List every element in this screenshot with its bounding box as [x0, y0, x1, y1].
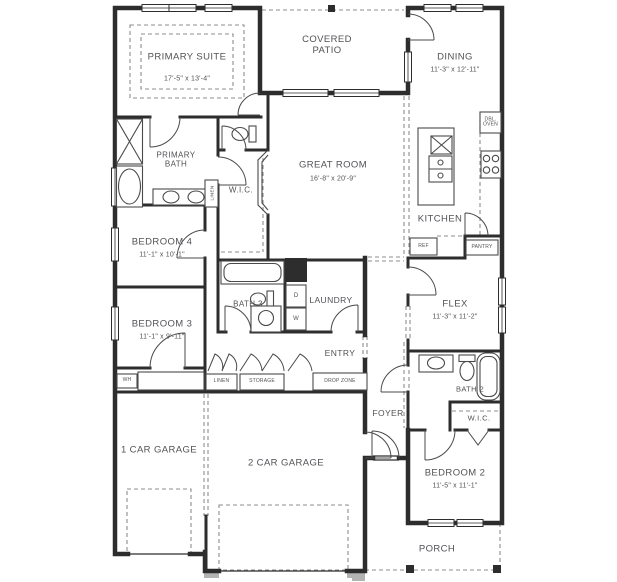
room-label-garage1: 1 CAR GARAGE	[121, 444, 197, 455]
shower	[117, 119, 143, 164]
door-linen-closet	[208, 354, 237, 371]
vanity-2	[419, 355, 453, 372]
room-label-wic-primary: W.I.C.	[229, 185, 253, 194]
kitchen-island	[418, 128, 454, 205]
room-label-kitchen: KITCHEN	[418, 213, 463, 224]
callout-linen-hall: LINEN	[214, 379, 230, 385]
room-label-porch: PORCH	[419, 543, 455, 554]
callout-water-heater: WH	[123, 378, 132, 384]
room-label-primary-suite: PRIMARY SUITE	[147, 51, 227, 62]
door-dining-patio	[408, 14, 434, 40]
callout-drop-zone: DROP ZONE	[324, 379, 355, 385]
door-storage-closet	[240, 354, 284, 371]
garage1-door	[127, 489, 191, 554]
door-primary-suite	[238, 93, 260, 115]
door-laundry	[331, 305, 358, 332]
room-label-primary-bath: PRIMARY BATH	[148, 151, 204, 170]
cooktop	[481, 151, 501, 178]
room-label-bedroom3: BEDROOM 3	[132, 318, 193, 329]
wic-primary-rod	[221, 158, 263, 252]
door-bedroom2	[425, 430, 455, 460]
room-label-bedroom2: BEDROOM 2	[425, 467, 486, 478]
room-label-bath3: BATH 3	[233, 299, 263, 308]
callout-pantry: PANTRY	[471, 245, 492, 251]
porch-post	[493, 565, 501, 573]
room-dims-dining: 11'-3" x 12'-11"	[430, 67, 479, 74]
floor-plan-drawing	[0, 0, 617, 582]
door-flex	[408, 267, 436, 295]
room-label-wic2: W.I.C.	[468, 415, 491, 424]
door-coat-closet	[288, 354, 312, 371]
door-pantry	[465, 213, 488, 236]
callout-storage: STORAGE	[249, 379, 275, 385]
callout-linen-primary: LINEN	[209, 185, 214, 200]
room-dims-bedroom3: 11'-1" x 9'-11"	[139, 334, 184, 341]
room-label-garage2: 2 CAR GARAGE	[248, 457, 324, 468]
room-dims-great-room: 16'-8" x 20'-9"	[310, 176, 356, 183]
kitchen-great-room-divider	[404, 96, 409, 256]
room-dims-primary-suite: 17'-5" x 13'-4"	[164, 76, 210, 83]
room-label-entry: ENTRY	[325, 348, 356, 358]
door-wic-primary	[218, 157, 246, 185]
sink-3	[251, 306, 281, 332]
porch-post	[406, 565, 414, 573]
wall-hatches	[204, 571, 365, 581]
great-room-opening	[368, 257, 404, 261]
room-label-covered-patio: COVERED PATIO	[295, 34, 359, 56]
door-bath3	[225, 306, 251, 332]
room-label-dining: DINING	[437, 51, 473, 62]
patio-post	[328, 5, 335, 12]
entry-foyer-opening	[363, 336, 367, 359]
room-label-laundry: LAUNDRY	[309, 295, 352, 305]
room-label-great-room: GREAT ROOM	[278, 159, 388, 170]
room-label-bath2: BATH 2	[454, 386, 486, 395]
room-label-flex: FLEX	[442, 298, 467, 309]
bed3-closet	[138, 372, 204, 390]
callout-ref: REF	[418, 244, 429, 250]
door-front	[372, 431, 399, 458]
door-wic2	[467, 430, 489, 445]
callout-dbl-oven: DBL. OVEN	[483, 117, 499, 129]
chase-block	[285, 258, 307, 282]
toilet-2	[459, 355, 475, 381]
room-dims-bedroom2: 11'-5" x 11'-1"	[432, 483, 477, 490]
thresholds	[128, 456, 399, 571]
room-dims-bedroom4: 11'-1" x 10'-1"	[139, 252, 185, 259]
garage2-door	[219, 505, 348, 570]
bathtub-primary	[117, 166, 143, 207]
flex-opening	[406, 306, 410, 339]
room-dims-flex: 11'-3" x 11'-2"	[432, 314, 477, 321]
callout-washer: W	[293, 316, 299, 322]
bathtub-3	[221, 261, 284, 284]
room-label-foyer: FOYER	[372, 408, 403, 418]
floor-plan: PRIMARY SUITE 17'-5" x 13'-4" COVERED PA…	[0, 0, 617, 582]
callout-dryer: D	[294, 293, 298, 299]
door-primary-bath	[150, 117, 180, 147]
garage-divider	[204, 394, 208, 516]
room-label-bedroom4: BEDROOM 4	[132, 236, 193, 247]
